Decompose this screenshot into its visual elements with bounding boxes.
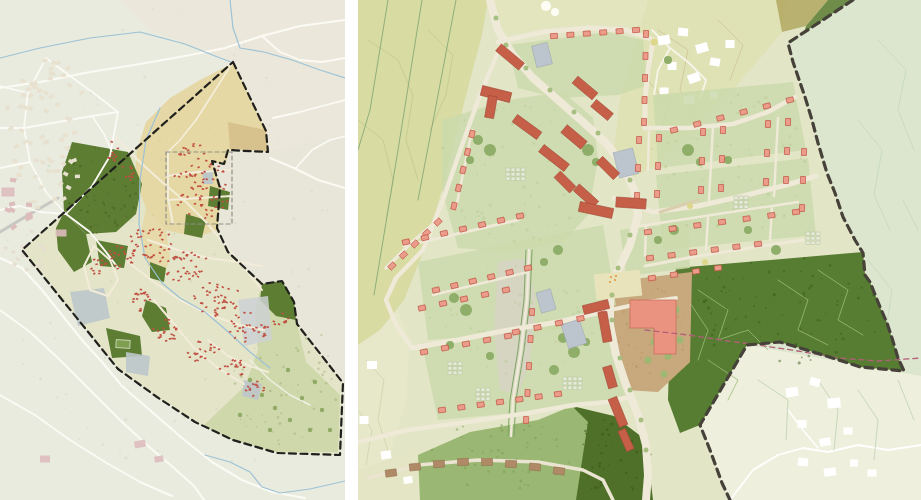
map-figure bbox=[0, 0, 921, 500]
panel-divider bbox=[345, 0, 358, 500]
masterplan-map bbox=[358, 0, 921, 500]
overview-map bbox=[0, 0, 345, 500]
